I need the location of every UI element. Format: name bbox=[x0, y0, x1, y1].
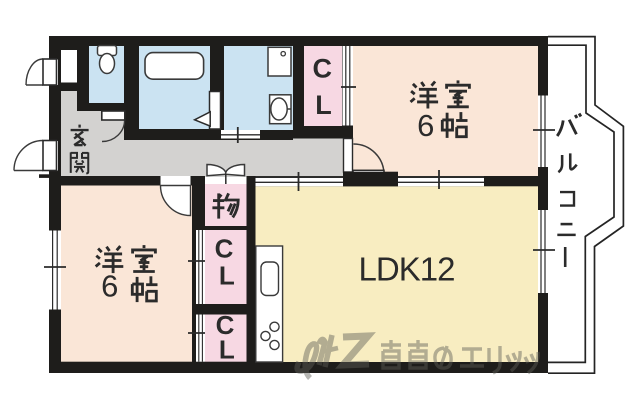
svg-text:6: 6 bbox=[101, 269, 118, 304]
svg-text:L: L bbox=[219, 261, 235, 291]
svg-text:C: C bbox=[215, 234, 234, 264]
svg-text:6: 6 bbox=[417, 108, 434, 143]
svg-text:C: C bbox=[313, 54, 333, 84]
svg-text:L: L bbox=[219, 334, 235, 364]
svg-text:L: L bbox=[315, 90, 332, 120]
svg-text:LDK12: LDK12 bbox=[359, 251, 455, 288]
